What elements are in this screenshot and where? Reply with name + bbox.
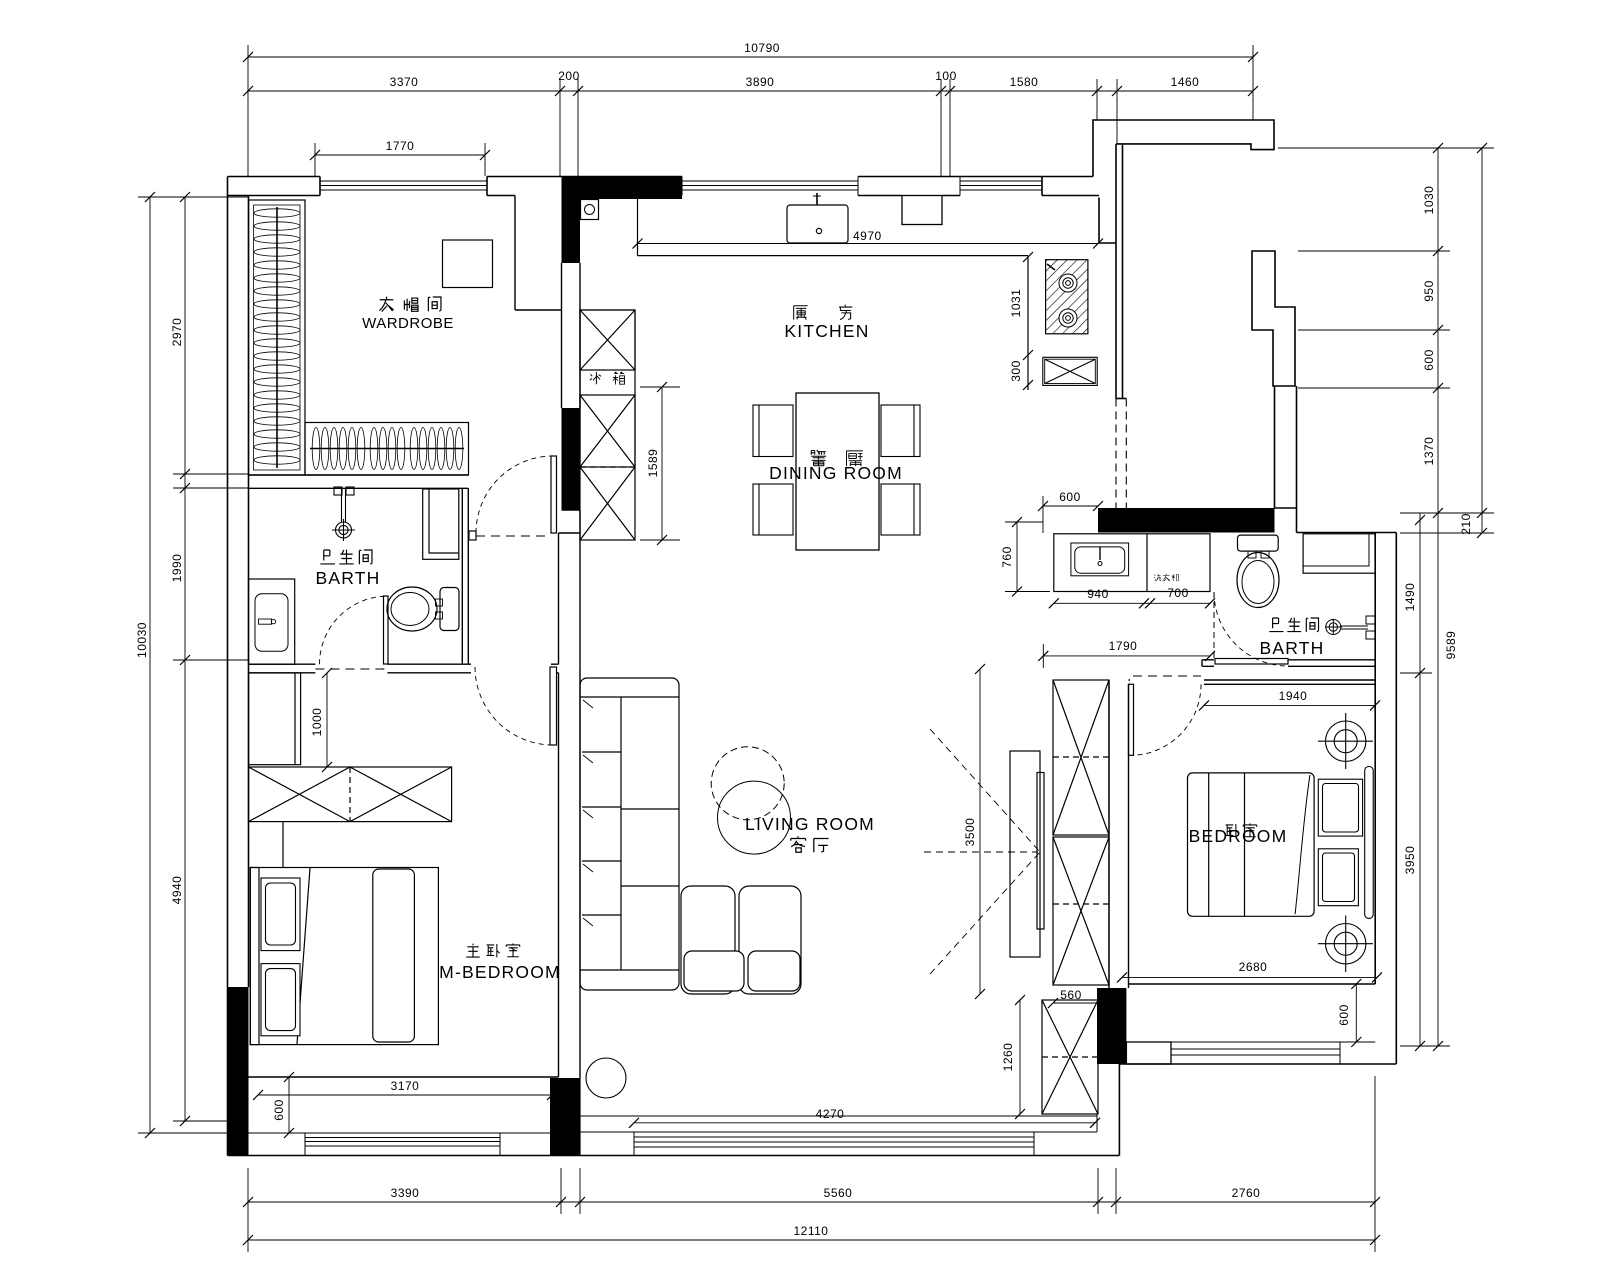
svg-text:1030: 1030: [1422, 186, 1436, 215]
svg-text:M-BEDROOM: M-BEDROOM: [439, 962, 561, 982]
svg-text:940: 940: [1087, 587, 1109, 601]
svg-text:600: 600: [1337, 1004, 1351, 1026]
svg-text:1940: 1940: [1279, 689, 1308, 703]
svg-text:1790: 1790: [1109, 639, 1138, 653]
svg-text:1370: 1370: [1422, 437, 1436, 466]
svg-text:12110: 12110: [794, 1224, 829, 1238]
svg-text:100: 100: [935, 69, 957, 83]
svg-text:4270: 4270: [816, 1107, 845, 1121]
svg-text:1589: 1589: [646, 449, 660, 478]
svg-text:200: 200: [558, 69, 580, 83]
svg-text:2760: 2760: [1232, 1186, 1261, 1200]
svg-text:560: 560: [1060, 988, 1082, 1002]
svg-text:600: 600: [1422, 349, 1436, 371]
svg-text:KITCHEN: KITCHEN: [784, 321, 869, 341]
svg-text:760: 760: [1000, 546, 1014, 568]
svg-text:BEDROOM: BEDROOM: [1189, 826, 1288, 846]
svg-text:600: 600: [1059, 490, 1081, 504]
svg-text:1460: 1460: [1171, 75, 1200, 89]
svg-text:2680: 2680: [1239, 960, 1268, 974]
svg-text:3890: 3890: [746, 75, 775, 89]
svg-text:1580: 1580: [1010, 75, 1039, 89]
svg-text:700: 700: [1167, 586, 1189, 600]
svg-text:3950: 3950: [1403, 846, 1417, 875]
svg-text:950: 950: [1422, 280, 1436, 302]
svg-text:1260: 1260: [1001, 1043, 1015, 1072]
svg-text:1031: 1031: [1009, 289, 1023, 318]
svg-text:DINING ROOM: DINING ROOM: [769, 463, 903, 483]
svg-text:10030: 10030: [135, 622, 149, 658]
svg-text:WARDROBE: WARDROBE: [362, 315, 454, 332]
svg-text:3390: 3390: [391, 1186, 420, 1200]
svg-text:2970: 2970: [170, 318, 184, 347]
svg-text:BARTH: BARTH: [316, 568, 381, 588]
svg-text:LIVING ROOM: LIVING ROOM: [745, 814, 875, 834]
svg-text:1770: 1770: [386, 139, 415, 153]
svg-text:1990: 1990: [170, 554, 184, 583]
svg-text:9589: 9589: [1444, 631, 1458, 660]
svg-text:10790: 10790: [744, 41, 780, 55]
svg-text:1490: 1490: [1403, 583, 1417, 612]
svg-text:300: 300: [1009, 360, 1023, 382]
svg-text:4970: 4970: [853, 229, 882, 243]
svg-text:1000: 1000: [310, 708, 324, 737]
svg-text:3170: 3170: [391, 1079, 420, 1093]
svg-text:600: 600: [272, 1099, 286, 1121]
svg-text:5560: 5560: [824, 1186, 853, 1200]
svg-text:210: 210: [1459, 513, 1473, 535]
svg-text:3370: 3370: [390, 75, 419, 89]
svg-text:BARTH: BARTH: [1260, 638, 1325, 658]
svg-text:4940: 4940: [170, 876, 184, 905]
svg-text:3500: 3500: [963, 818, 977, 847]
